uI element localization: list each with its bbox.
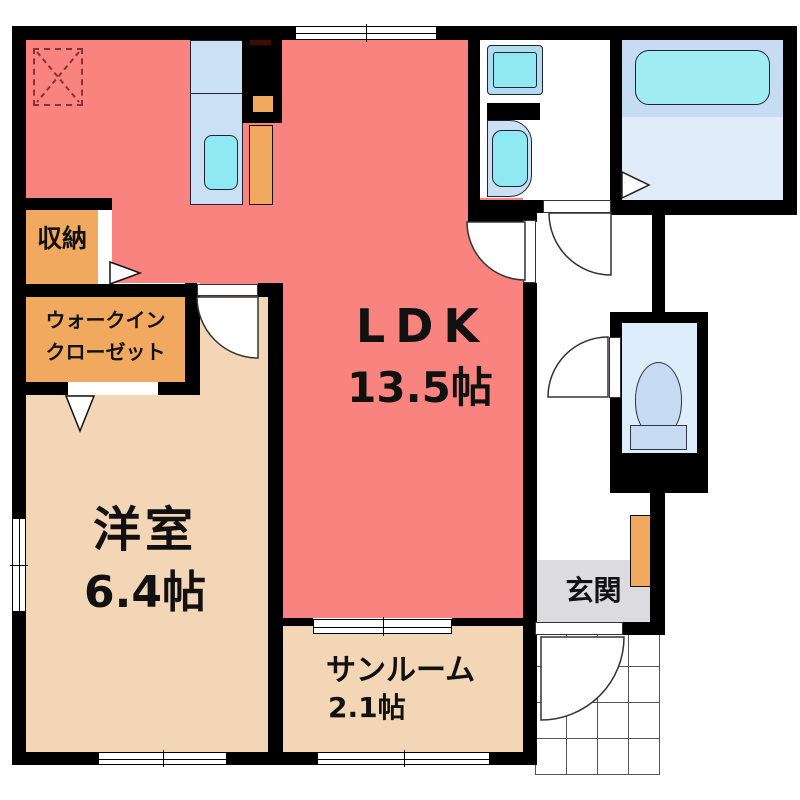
window-sunroom-top — [313, 619, 452, 634]
window-left — [12, 518, 26, 612]
toilet-floor — [622, 323, 697, 453]
kitchen-cabinet-small — [253, 96, 273, 112]
label-wic-line1: ウォークイン — [28, 310, 183, 331]
wall-washbath-bottom-right — [611, 200, 797, 215]
door-arc-washroom — [549, 213, 611, 275]
label-wic-line2: クローゼット — [28, 342, 183, 363]
label-ldk-size: 13.5帖 — [320, 366, 520, 410]
wall-bottom-a — [12, 752, 98, 765]
wall-right-outer — [783, 26, 797, 215]
wall-wic-bottom-a — [15, 382, 68, 395]
storage-door-opening — [98, 210, 112, 284]
wall-entrance-right — [650, 493, 665, 635]
label-western-name: 洋室 — [60, 505, 230, 555]
washing-machine-pan-inner — [493, 52, 537, 88]
door-leaf-entrance — [535, 622, 623, 635]
wall-hall-stub — [652, 213, 665, 312]
door-leaf-washroom — [543, 200, 611, 213]
label-ldk-name: LDK — [330, 302, 515, 350]
bathroom-floor — [622, 117, 783, 200]
window-bottom-western — [98, 752, 227, 765]
wall-left-lower — [12, 612, 26, 765]
kitchen-cabinet-tall — [249, 125, 273, 205]
wall-western-right — [268, 283, 283, 765]
washbasin-bowl — [492, 130, 528, 187]
porch-tiles — [535, 630, 660, 775]
door-leaf-western — [197, 284, 258, 296]
wall-storage-bottom — [15, 284, 200, 297]
wall-bath-left — [610, 40, 622, 200]
room-western — [200, 297, 268, 395]
room-ldk — [283, 395, 523, 618]
wall-left-upper — [12, 26, 26, 518]
wall-entrance-door-block — [623, 622, 653, 635]
wall-washbath-bottom-left — [480, 200, 543, 213]
ceiling-access-icon — [33, 48, 83, 106]
bathtub — [635, 50, 770, 105]
wall-sunroom-top-a — [283, 618, 313, 626]
wall-washroom-left — [468, 40, 480, 212]
label-sunroom-size: 2.1帖 — [328, 693, 406, 722]
kitchen-sink — [204, 135, 238, 190]
label-entrance: 玄関 — [541, 576, 646, 605]
window-top — [295, 26, 437, 40]
kitchen-counter-divider — [190, 93, 243, 94]
wall-wic-right — [185, 297, 200, 395]
door-leaf-toilet — [609, 337, 621, 398]
wall-storage-top — [15, 198, 112, 210]
door-arc-toilet — [548, 337, 608, 397]
label-sunroom-name: サンルーム — [326, 655, 475, 687]
label-western-size: 6.4帖 — [55, 570, 235, 616]
door-leaf-ldk-hall — [523, 220, 536, 283]
wall-ldk-east — [523, 283, 537, 757]
room-sunroom — [283, 626, 523, 752]
wall-western-top-a — [185, 283, 197, 297]
room-ldk — [112, 198, 523, 283]
window-bottom-sunroom — [317, 752, 490, 765]
wall-top-right — [437, 26, 790, 40]
wall-wic-bottom-b — [158, 382, 200, 395]
washroom-counter — [487, 103, 540, 120]
toilet-room-walls — [610, 312, 708, 493]
toilet-tank — [630, 425, 687, 450]
wall-sunroom-top-b — [452, 618, 532, 626]
wall-top-left — [15, 26, 295, 40]
label-storage: 収納 — [28, 226, 96, 252]
floor-plan: LDK 13.5帖 洋室 6.4帖 サンルーム 2.1帖 玄関 収納 ウォークイ… — [0, 0, 800, 800]
